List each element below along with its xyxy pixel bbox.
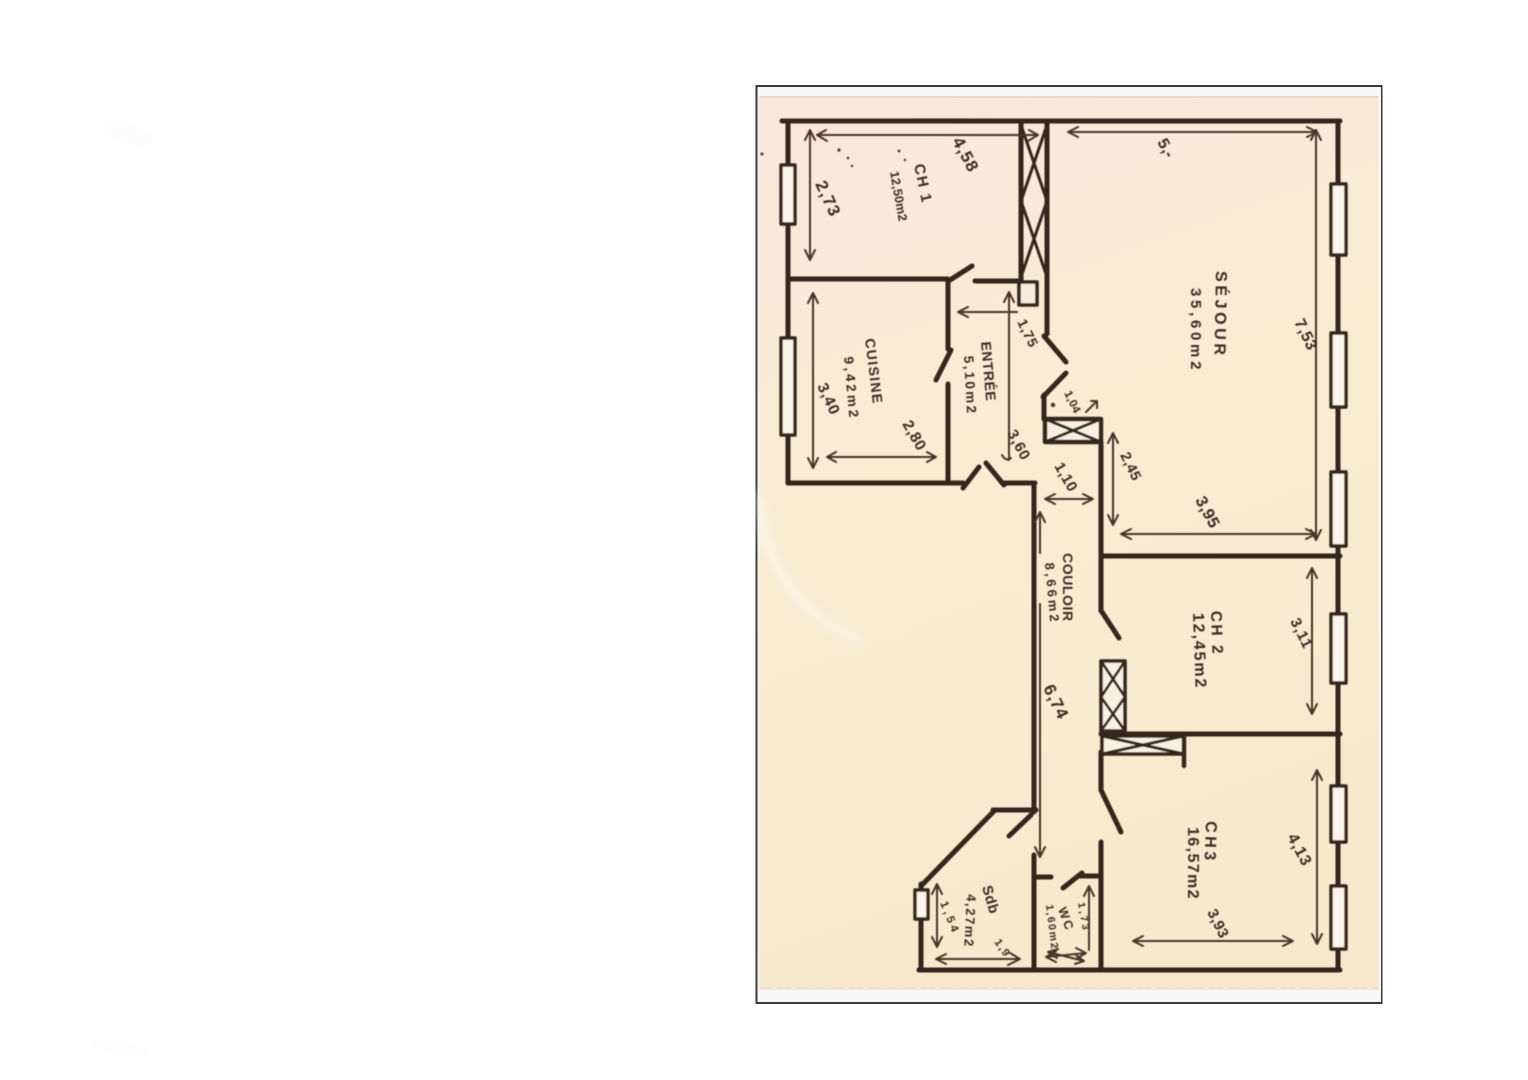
svg-text:12,45m2: 12,45m2 <box>1189 613 1209 690</box>
svg-text:CH3: CH3 <box>1201 821 1219 864</box>
svg-text:35,60m2: 35,60m2 <box>1187 288 1204 373</box>
svg-text:CH 2: CH 2 <box>1207 611 1226 657</box>
svg-text:COULOIR: COULOIR <box>1060 553 1076 622</box>
svg-text:16,57m2: 16,57m2 <box>1184 827 1201 900</box>
svg-text:5,10m2: 5,10m2 <box>961 355 979 415</box>
svg-text:SÉJOUR: SÉJOUR <box>1210 271 1231 359</box>
svg-text:4,27m2: 4,27m2 <box>961 894 979 948</box>
